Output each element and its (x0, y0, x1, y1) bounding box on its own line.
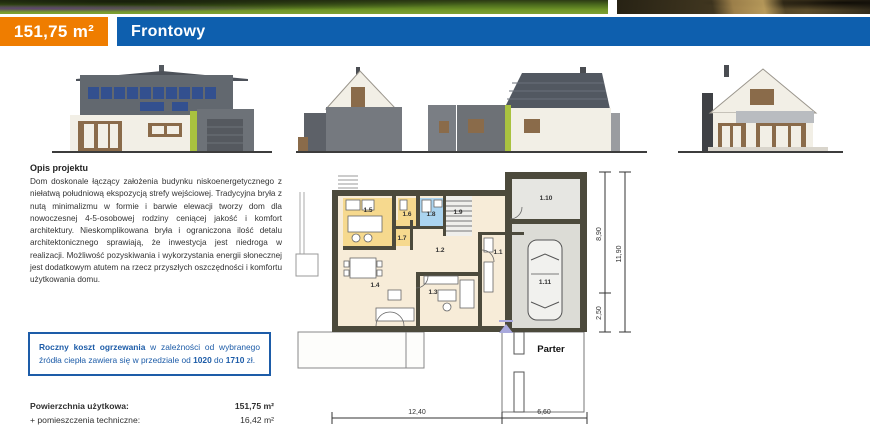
terrace (298, 332, 424, 368)
room-label: 1.10 (540, 195, 553, 202)
area-label: Powierzchnia użytkowa: (30, 399, 129, 413)
infobox-segment: Roczny koszt ogrzewania (39, 342, 145, 352)
heating-cost-box: Roczny koszt ogrzewania w zależności od … (28, 332, 271, 376)
room-label: 1.6 (402, 211, 411, 218)
dimension-label: 2,50 (596, 306, 603, 320)
description-body: Dom doskonale łączący założenia budynku … (30, 176, 282, 287)
area-value: 16,42 m² (240, 413, 286, 427)
room-label: 1.11 (539, 279, 552, 286)
area-table: Powierzchnia użytkowa: 151,75 m² + pomie… (30, 399, 286, 427)
photo-garden-path (617, 0, 870, 14)
garden-pad (296, 254, 318, 276)
room-label: 1.3 (428, 289, 437, 296)
area-label: + pomieszczenia techniczne: (30, 413, 140, 427)
infobox-segment: do (212, 355, 226, 365)
room-label: 1.1 (493, 249, 502, 256)
elevation-side-right-drawing (452, 63, 647, 158)
room-label: 1.5 (363, 207, 372, 214)
room-label: 1.9 (453, 209, 462, 216)
description-title: Opis projektu (30, 163, 282, 173)
room-label: 1.7 (397, 235, 406, 242)
floor-plan: 1.1 1.2 1.3 1.4 1.5 1.6 1.7 1.8 1.9 1.10… (288, 162, 633, 430)
elevation-side-left-drawing (296, 63, 456, 158)
dimension-label: 8,90 (596, 227, 603, 241)
stair-treads (446, 201, 472, 231)
floor-name: Parter (537, 344, 565, 355)
infobox-segment: zł. (244, 355, 255, 365)
project-title-bar: Frontowy (117, 17, 870, 46)
infobox-segment: 1020 (193, 355, 212, 365)
area-badge: 151,75 m² (0, 17, 108, 46)
room-label: 1.2 (435, 247, 444, 254)
table-row: Powierzchnia użytkowa: 151,75 m² (30, 399, 286, 413)
entry-steps (338, 176, 358, 188)
area-value: 151,75 m² (235, 399, 286, 413)
room-label: 1.4 (370, 282, 379, 289)
project-description: Opis projektu Dom doskonale łączący zało… (30, 163, 282, 287)
table-row: + pomieszczenia techniczne: 16,42 m² (30, 413, 286, 427)
dimension-label: 6,60 (537, 409, 551, 416)
dimension-label: 12,40 (408, 409, 426, 416)
photo-house-exterior (0, 0, 608, 14)
room-label: 1.8 (426, 211, 435, 218)
dimension-label: 11,90 (616, 245, 623, 262)
elevation-front-drawing (52, 63, 272, 158)
infobox-segment: 1710 (226, 355, 245, 365)
elevation-rear-drawing (678, 63, 843, 158)
